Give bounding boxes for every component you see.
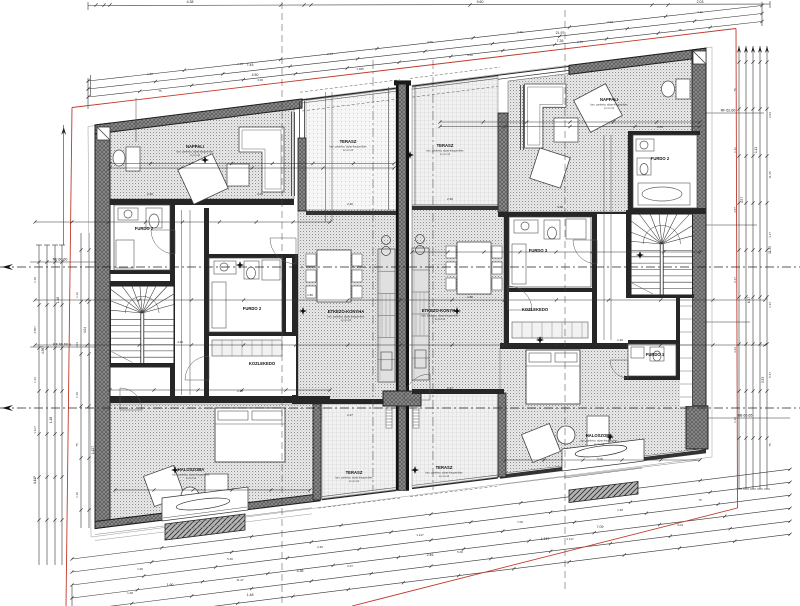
svg-text:4.17: 4.17 [768,232,772,238]
svg-text:xx,xx m2: xx,xx m2 [343,148,354,152]
svg-text:FURDO 2: FURDO 2 [243,306,262,311]
svg-text:9.60: 9.60 [477,0,484,4]
svg-text:1.80: 1.80 [467,295,473,299]
svg-text:lam. parketta, aljzat-kiegyenl: lam. parketta, aljzat-kiegyenlites [177,150,215,154]
svg-text:RF 60.60 a: RF 60.60 a [53,343,71,347]
svg-text:xx,xx m2: xx,xx m2 [190,153,201,157]
svg-text:4.587: 4.587 [33,326,37,334]
svg-text:3.33: 3.33 [733,347,737,353]
svg-text:TERASZ: TERASZ [437,143,454,148]
svg-text:4.46: 4.46 [177,340,183,344]
svg-text:2.46: 2.46 [317,545,323,549]
svg-text:1.18: 1.18 [49,417,53,423]
svg-text:4.50: 4.50 [427,40,433,44]
svg-text:xx,xx m2: xx,xx m2 [435,317,446,321]
svg-text:11.35: 11.35 [768,171,772,179]
svg-text:1.90: 1.90 [127,521,133,525]
svg-text:4.04: 4.04 [83,327,87,333]
svg-text:75: 75 [698,498,702,502]
svg-text:75: 75 [768,443,772,447]
svg-text:2.46: 2.46 [427,553,434,557]
svg-text:lam. parketta, aljzat-kiegyenl: lam. parketta, aljzat-kiegyenlites [173,473,211,477]
svg-text:lam. parketta, aljzat-kiegyenl: lam. parketta, aljzat-kiegyenlites [427,149,465,153]
svg-text:1.48: 1.48 [247,593,254,597]
svg-text:6.17: 6.17 [733,277,737,283]
svg-text:1.10: 1.10 [75,492,79,498]
svg-text:xx,xx m2: xx,xx m2 [186,476,197,480]
svg-text:lam. parketta, aljzat-kiegyenl: lam. parketta, aljzat-kiegyenlites [426,471,464,475]
svg-text:2.03: 2.03 [697,0,704,4]
svg-text:4.04: 4.04 [677,523,683,527]
svg-text:1.127: 1.127 [33,426,37,434]
svg-text:BB 60.65: BB 60.65 [738,414,753,418]
svg-text:4.38: 4.38 [187,0,194,4]
svg-text:4.57: 4.57 [740,197,744,203]
svg-text:1.80: 1.80 [307,293,313,297]
svg-text:1.12: 1.12 [75,292,79,298]
svg-text:7.45: 7.45 [247,63,254,67]
svg-text:1.117: 1.117 [33,476,37,484]
svg-text:ETKEZO-KONYHA: ETKEZO-KONYHA [328,309,365,314]
svg-text:1.10: 1.10 [617,338,623,342]
svg-text:9.60: 9.60 [467,53,473,57]
svg-text:2.40: 2.40 [537,336,543,340]
svg-text:HALOSZOBA: HALOSZOBA [586,433,613,438]
svg-text:75: 75 [678,28,682,32]
svg-text:1.16: 1.16 [33,377,37,383]
svg-text:7.09: 7.09 [597,525,604,529]
svg-text:5.06: 5.06 [597,457,603,461]
svg-text:2.27: 2.27 [447,386,453,390]
svg-text:4.04: 4.04 [75,342,79,348]
svg-text:7.26: 7.26 [557,39,564,43]
svg-text:RF 60.60: RF 60.60 [53,258,68,262]
svg-text:lam. parketta, aljzat-kiegyenl: lam. parketta, aljzat-kiegyenlites [330,145,368,149]
svg-text:FURDO 2: FURDO 2 [135,226,154,231]
svg-text:FURDO 1: FURDO 1 [646,352,665,357]
svg-text:5.36: 5.36 [227,557,233,561]
svg-text:1.18: 1.18 [75,392,79,398]
svg-text:TERASZ: TERASZ [346,470,363,475]
svg-text:xx,xx m2: xx,xx m2 [604,106,615,110]
svg-text:5.06: 5.06 [457,550,463,554]
svg-text:2.27: 2.27 [347,564,353,568]
svg-text:NAPPALI: NAPPALI [186,144,204,149]
svg-text:xx,xx m2: xx,xx m2 [341,318,352,322]
svg-text:NAPPALI: NAPPALI [600,97,618,102]
svg-text:3.33: 3.33 [761,377,765,383]
svg-text:11.35: 11.35 [768,246,772,254]
svg-text:75: 75 [733,88,737,92]
svg-text:4.50: 4.50 [252,73,259,77]
svg-text:KOZLEKEDO: KOZLEKEDO [522,307,549,312]
svg-text:5.47: 5.47 [768,372,772,378]
svg-text:1.485: 1.485 [356,67,364,71]
svg-text:1.10: 1.10 [733,417,737,423]
svg-text:ETKEZO-KONYHA: ETKEZO-KONYHA [422,308,459,313]
svg-text:7.09: 7.09 [517,520,523,524]
svg-text:2.40: 2.40 [147,192,153,196]
svg-text:2.03: 2.03 [607,20,613,24]
svg-text:1.18: 1.18 [33,277,37,283]
svg-text:1.11: 1.11 [697,10,703,14]
svg-text:KOZLEKEDO: KOZLEKEDO [249,361,276,366]
svg-text:1.147: 1.147 [416,533,424,537]
svg-text:3.48: 3.48 [557,205,563,209]
svg-text:2.27: 2.27 [347,413,353,417]
svg-text:lam. parketta, aljzat-kiegyenl: lam. parketta, aljzat-kiegyenlites [328,315,366,319]
svg-text:FURDO 2: FURDO 2 [651,156,670,161]
svg-text:1.127: 1.127 [91,446,95,454]
svg-text:lam. parketta, aljzat-kiegyenl: lam. parketta, aljzat-kiegyenlites [336,476,374,480]
svg-text:xx,xx m2: xx,xx m2 [594,442,605,446]
svg-text:xx,xx m2: xx,xx m2 [349,479,360,483]
svg-text:3.05: 3.05 [257,192,263,196]
svg-text:4.38: 4.38 [257,78,263,82]
svg-text:2.46: 2.46 [577,40,583,44]
svg-text:1.11: 1.11 [754,147,758,153]
svg-text:1.50: 1.50 [147,72,153,76]
svg-text:5.36: 5.36 [297,569,304,573]
svg-text:75: 75 [158,89,162,93]
svg-text:HALOSZOBA: HALOSZOBA [178,467,205,472]
svg-text:21.97: 21.97 [556,31,565,35]
svg-text:1.11: 1.11 [733,147,737,153]
svg-text:4.57: 4.57 [733,207,737,213]
svg-text:1.117: 1.117 [566,537,574,541]
svg-text:1.147: 1.147 [541,537,550,541]
svg-text:2.03: 2.03 [657,125,663,129]
svg-text:1.90: 1.90 [137,567,143,571]
svg-text:3.30: 3.30 [517,30,523,34]
svg-text:RF 62.60: RF 62.60 [721,109,736,113]
svg-text:1.41: 1.41 [768,302,772,308]
svg-text:2.48: 2.48 [237,389,243,393]
svg-text:11.47: 11.47 [236,578,244,582]
svg-text:lam. parketta, aljzat-kiegyenl: lam. parketta, aljzat-kiegyenlites [422,314,460,318]
svg-text:75: 75 [75,443,79,447]
svg-text:xx,xx m2: xx,xx m2 [439,474,450,478]
svg-text:2.40: 2.40 [327,52,333,56]
svg-text:7.45: 7.45 [237,62,243,66]
svg-text:xx,xx m2: xx,xx m2 [440,152,451,156]
svg-text:2.03: 2.03 [768,112,772,118]
svg-text:FURDO 3: FURDO 3 [529,248,548,253]
svg-text:2.30: 2.30 [447,197,453,201]
svg-text:TERASZ: TERASZ [340,139,357,144]
svg-text:1.90: 1.90 [167,583,174,587]
svg-text:TERASZ: TERASZ [436,465,453,470]
svg-text:lam. parketta, aljzat-kiegyenl: lam. parketta, aljzat-kiegyenlites [581,439,619,443]
svg-text:1.48: 1.48 [617,508,623,512]
svg-text:2.30: 2.30 [347,202,353,206]
svg-text:lam. parketta, aljzat-kiegyenl: lam. parketta, aljzat-kiegyenlites [591,103,629,107]
svg-text:1.48: 1.48 [127,591,133,595]
